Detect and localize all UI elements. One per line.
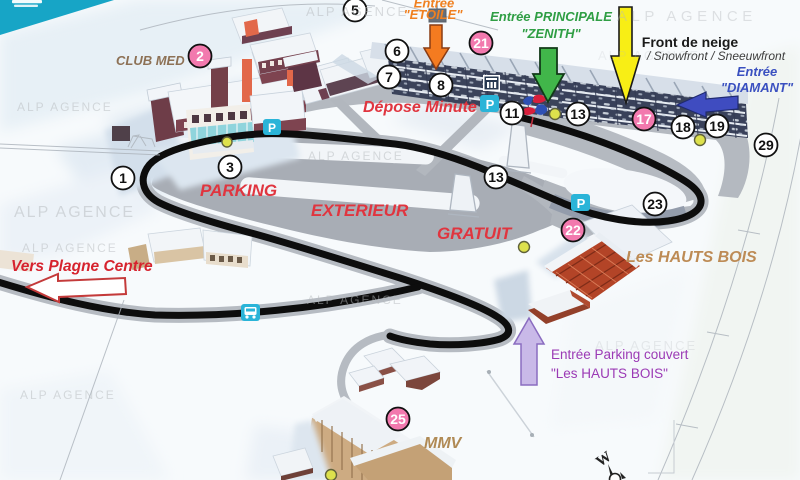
svg-text:MMV: MMV — [424, 435, 463, 452]
svg-text:Vers Plagne Centre: Vers Plagne Centre — [11, 258, 153, 275]
svg-text:ALP AGENCE: ALP AGENCE — [20, 388, 116, 402]
svg-text:7: 7 — [385, 69, 393, 85]
svg-text:2: 2 — [196, 48, 204, 64]
svg-text:1: 1 — [119, 170, 127, 186]
svg-text:25: 25 — [390, 411, 406, 427]
svg-text:ALP AGENCE: ALP AGENCE — [595, 338, 697, 353]
svg-text:ALP AGENCE: ALP AGENCE — [17, 100, 113, 114]
svg-text:29: 29 — [758, 137, 774, 153]
svg-text:8: 8 — [437, 77, 445, 93]
svg-text:ALP AGENCE: ALP AGENCE — [598, 48, 700, 63]
svg-text:EXTERIEUR: EXTERIEUR — [311, 201, 409, 220]
svg-text:CLUB MED: CLUB MED — [116, 53, 185, 68]
svg-text:"Les HAUTS BOIS": "Les HAUTS BOIS" — [551, 366, 668, 381]
svg-text:"ZENITH": "ZENITH" — [521, 26, 581, 41]
svg-text:Dépose Minute: Dépose Minute — [363, 99, 477, 116]
svg-text:19: 19 — [709, 118, 725, 134]
svg-text:ALP AGENCE: ALP AGENCE — [307, 293, 403, 307]
svg-text:Les HAUTS BOIS: Les HAUTS BOIS — [626, 249, 757, 266]
svg-text:P: P — [577, 196, 586, 211]
svg-text:13: 13 — [488, 169, 504, 185]
svg-text:ALP AGENCE: ALP AGENCE — [308, 149, 404, 163]
svg-text:Entrée: Entrée — [737, 64, 777, 79]
svg-text:22: 22 — [565, 222, 581, 238]
svg-text:Entrée PRINCIPALE: Entrée PRINCIPALE — [490, 9, 612, 24]
svg-text:GRATUIT: GRATUIT — [437, 224, 513, 243]
svg-text:3: 3 — [226, 159, 234, 175]
svg-text:ALP AGENCE: ALP AGENCE — [14, 204, 135, 221]
svg-text:11: 11 — [505, 105, 520, 121]
svg-text:18: 18 — [675, 119, 691, 135]
svg-text:23: 23 — [647, 196, 663, 212]
svg-text:ALP AGENCE: ALP AGENCE — [306, 4, 408, 19]
svg-text:13: 13 — [570, 106, 586, 122]
svg-text:PARKING: PARKING — [200, 181, 277, 200]
svg-text:21: 21 — [473, 35, 489, 51]
svg-text:6: 6 — [393, 43, 401, 59]
svg-text:"DIAMANT": "DIAMANT" — [721, 80, 794, 95]
svg-text:P: P — [486, 97, 495, 112]
svg-text:17: 17 — [636, 111, 652, 127]
svg-text:"ETOILE": "ETOILE" — [403, 7, 463, 22]
svg-text:ALP AGENCE: ALP AGENCE — [22, 241, 118, 255]
svg-text:ALP AGENCE: ALP AGENCE — [617, 8, 757, 25]
svg-text:P: P — [268, 121, 276, 135]
